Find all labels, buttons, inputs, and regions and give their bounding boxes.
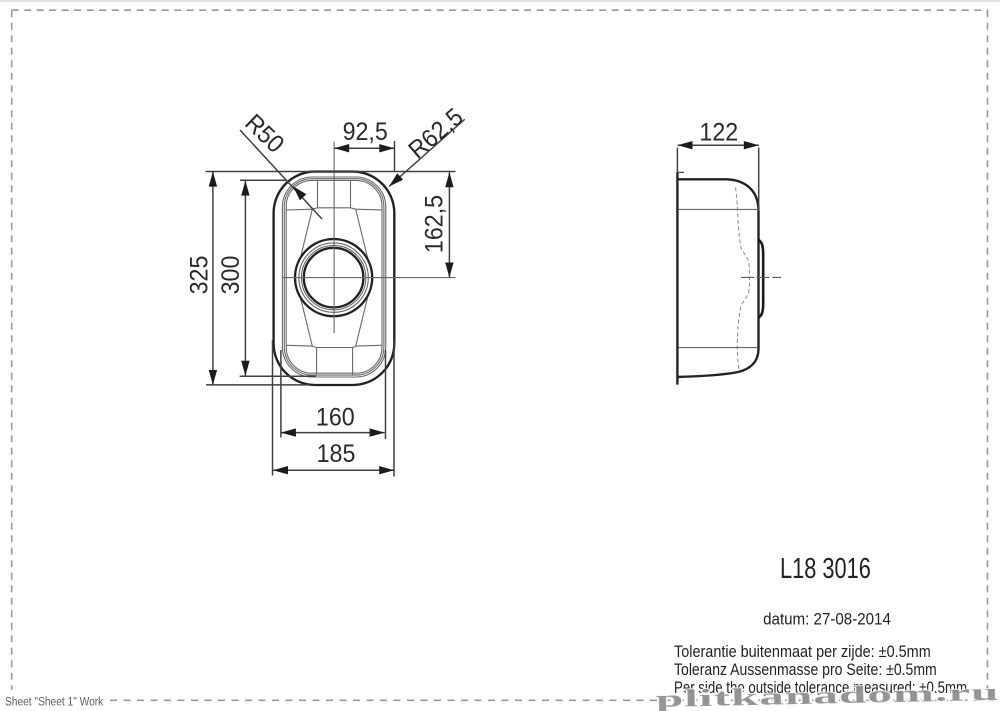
svg-text:162,5: 162,5 xyxy=(421,195,449,253)
svg-text:datum: 27-08-2014: datum: 27-08-2014 xyxy=(763,610,891,629)
svg-text:Toleranz Aussenmasse pro Seite: Toleranz Aussenmasse pro Seite: ±0.5mm xyxy=(674,661,937,680)
svg-text:L18 3016: L18 3016 xyxy=(780,553,871,584)
svg-text:300: 300 xyxy=(217,256,245,295)
svg-text:325: 325 xyxy=(186,256,214,295)
svg-text:122: 122 xyxy=(699,119,738,147)
svg-text:160: 160 xyxy=(316,404,355,432)
svg-text:185: 185 xyxy=(317,440,356,468)
svg-text:92,5: 92,5 xyxy=(343,118,388,146)
svg-text:Sheet "Sheet 1" Work: Sheet "Sheet 1" Work xyxy=(5,696,104,709)
svg-text:Tolerantie buitenmaat per zijd: Tolerantie buitenmaat per zijde: ±0.5mm xyxy=(674,643,931,661)
